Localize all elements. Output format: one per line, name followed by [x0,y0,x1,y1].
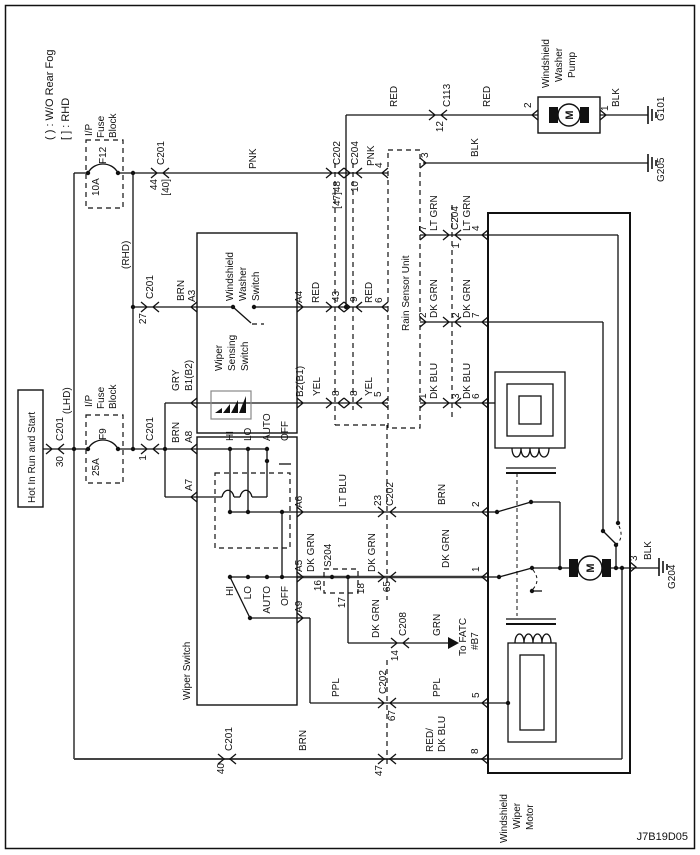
wire-dkgrn-3: DK GRN [441,529,452,568]
pin-a6: A6 [294,495,305,508]
connector-c201-27-pin: 27 [138,313,149,325]
wire-grn: GRN [432,614,443,636]
legend-rhd: [ ] : RHD [60,98,72,140]
wire-brn-a3: BRN [176,280,187,301]
wire-brn-2: BRN [437,484,448,505]
pump-pin-2: 2 [523,102,534,108]
connector-c202-47-pin: [47]48 [332,181,343,209]
connector-c208-name: C208 [398,612,409,636]
connector-c202-43-pin: 43 [331,290,342,302]
wire-blk-1: BLK [611,88,622,107]
washer-switch-label-l1: Windshield [225,252,236,301]
rhd-label: (RHD) [121,241,132,269]
connector-c204r-name: C204 [450,206,461,230]
motor-pin-1: 1 [471,566,482,572]
rain-sensor-label: Rain Sensor Unit [401,255,412,331]
switch1-off: OFF [280,421,291,441]
switch2-lo: LO [243,586,254,600]
wire-blk-3: BLK [643,541,654,560]
fuse-f9-block-l3: Block [108,384,119,409]
motor-pin-8: 8 [470,748,481,754]
diagram-id: J7B19D05 [637,831,688,843]
connector-c113-name: C113 [442,83,453,107]
auto-linkage-box [215,473,290,548]
washer-pump-label-l3: Pump [567,51,578,78]
connector-c202-67-name: C202 [378,670,389,694]
connector-c202-47-name: C202 [332,141,343,165]
ground-g204-label: G204 [667,564,678,589]
wire-red-3: RED [389,86,400,107]
pin-a4: A4 [294,290,305,303]
connector-c204-10-name: C204 [350,141,361,165]
washer-pump-label-l2: Washer [554,47,565,82]
wire-dkgrn-1: DK GRN [306,533,317,572]
wire-pnk-1: PNK [248,148,259,169]
ground-g204-icon [659,558,667,576]
connector-c201-1-name: C201 [145,417,156,441]
pin-b1: B1(B2) [184,360,195,391]
rain-pin-1: 1 [418,393,429,399]
connector-c201-44-pin-alt: [40] [161,179,172,196]
wire-redblu-l2: DK BLU [437,716,448,752]
connector-c201-44-pin: 44 [149,179,160,191]
connector-c204-9-pin: 9 [349,296,360,302]
pin-a7: A7 [184,478,195,491]
fuse-f12-block-l1: I/P [84,123,95,136]
wire-dkgrn-r1: DK GRN [429,279,440,318]
wiper-motor-label-l2: Wiper [512,802,523,829]
connector-c201-40-pin: 40 [216,763,227,775]
wiper-motor-box [488,213,630,773]
rain-pin-3: 3 [420,152,431,158]
legend-wo-rear-fog: ( ) : W/O Rear Fog [44,50,56,140]
rain-pin-7: 7 [418,225,429,231]
ground-g101-icon [648,106,656,124]
wire-ltblu: LT BLU [338,474,349,507]
splice-s204-name: S204 [323,543,334,567]
wiper-sensing-switch-icon [211,391,251,419]
wiper-motor-label-l1: Windshield [499,794,510,843]
connector-fences [86,140,452,765]
connector-c201-30-name: C201 [55,417,66,441]
pin-a3: A3 [187,289,198,302]
connector-c201-30-pin: 30 [55,456,66,468]
wiper-switch-label: Wiper Switch [182,642,193,700]
switch2-auto: AUTO [262,586,273,614]
fuse-f12-rating: 10A [91,178,102,196]
wiring-diagram-page: ( ) : W/O Rear Fog[ ] : RHDJ7B19D05Hot I… [0,0,700,855]
wire-ltgrn-1: LT GRN [429,195,440,231]
splice-s204-pin16: 16 [313,580,324,592]
pin-b2: B2(B1) [295,366,306,397]
switch2-off: OFF [280,586,291,606]
wiper-motor-internals [486,235,659,759]
connector-c204-8-pin: 8 [349,390,360,396]
connector-c204r-pin1: 1 [451,243,462,249]
connector-c202-67-pin: 67 [387,710,398,722]
label-layer: ( ) : W/O Rear Fog[ ] : RHDJ7B19D05Hot I… [27,39,688,843]
ground-g205-label: G205 [656,157,667,182]
fuse-f9-id: F9 [98,428,109,440]
motor-pin-3: 3 [629,555,640,561]
wire-brn-3: BRN [298,730,309,751]
splice-s204-pin18: 18 [356,583,367,595]
rain-pin-6: 6 [374,297,385,303]
connector-c113-pin: 12 [435,121,446,133]
connector-c201-44-name: C201 [156,141,167,165]
component-boxes [18,97,630,773]
connector-c201-40-name: C201 [224,727,235,751]
sensing-switch-label-l3: Switch [240,342,251,371]
connector-c201-27-name: C201 [145,275,156,299]
connector-c201-1-pin: 1 [138,455,149,461]
wire-red-1: RED [311,282,322,303]
washer-pump-label-l1: Windshield [541,39,552,88]
connector-c202-23-pin: 23 [373,494,384,506]
wire-brn-a8: BRN [171,422,182,443]
washer-switch-label-l3: Switch [251,272,262,301]
switch2-hi: HI [225,586,236,596]
connector-c204-10-pin: 10 [350,181,361,193]
switch1-auto: AUTO [262,413,273,441]
sensing-switch-label-l1: Wiper [214,344,225,371]
ground-g205-icon [648,154,656,172]
wire-ppl-1: PPL [331,678,342,697]
rain-pin-5: 5 [373,391,384,397]
pin-a5: A5 [294,559,305,572]
fuse-f12-block-l3: Block [108,113,119,138]
wire-dkblu-1: DK BLU [429,363,440,399]
connector-c202-65-pin: 65 [382,581,393,593]
fatc-label-l1: To FATC [458,618,469,656]
wire-gry: GRY [171,369,182,391]
connector-c204r-pin3: 3 [451,393,462,399]
wire-blk-2: BLK [470,138,481,157]
motor-pin-4: 4 [471,225,482,231]
washer-switch-label-l2: Washer [238,266,249,301]
wiring-diagram: ( ) : W/O Rear Fog[ ] : RHDJ7B19D05Hot I… [0,0,700,855]
wire-redblu-l1: RED/ [425,728,436,752]
connector-c204r-pin2: 2 [451,312,462,318]
pin-a9: A9 [294,600,305,613]
fuse-f9-block-l2: Fuse [96,386,107,409]
switch1-lo: LO [243,427,254,441]
motor-pin-2: 2 [471,501,482,507]
sensing-switch-label-l2: Sensing [227,335,238,371]
rain-pin-2: 2 [418,312,429,318]
ground-g101-label: G101 [656,96,667,121]
connector-c202-23-name: C202 [385,482,396,506]
splice-s204-pin17: 17 [337,597,348,609]
wire-dkgrn-r2: DK GRN [462,279,473,318]
motor-pin-6: 6 [471,393,482,399]
connector-c202-8-pin: 8 [331,390,342,396]
switch1-hi: HI [225,431,236,441]
s204-splice-box [324,569,358,593]
lhd-label: (LHD) [62,387,73,414]
connector-c208-pin: 14 [390,650,401,662]
wire-ppl-2: PPL [432,678,443,697]
wire-yel-1: YEL [312,377,323,396]
fuse-f9-rating: 25A [91,458,102,476]
pump-pin-1: 1 [600,105,611,111]
fuse-f9-block-l1: I/P [84,394,95,407]
wires [43,115,648,759]
rain-pin-4: 4 [374,162,385,168]
wiper-motor-m: M [585,563,597,572]
fuse-f12-id: F12 [98,146,109,164]
wire-red-4: RED [482,86,493,107]
pin-a8: A8 [184,430,195,443]
fatc-label-l2: #B7 [470,632,481,650]
motor-pin-7: 7 [471,312,482,318]
wire-dkgrn-2: DK GRN [367,533,378,572]
wiper-motor-label-l3: Motor [525,804,536,830]
motor-pin-5: 5 [471,692,482,698]
pump-motor-m: M [564,110,576,119]
fuse-f12-block-l2: Fuse [96,115,107,138]
wire-dkgrn-4: DK GRN [371,599,382,638]
hot-label: Hot In Run and Start [27,412,38,503]
connector-c202-47b-pin: 47 [374,765,385,777]
